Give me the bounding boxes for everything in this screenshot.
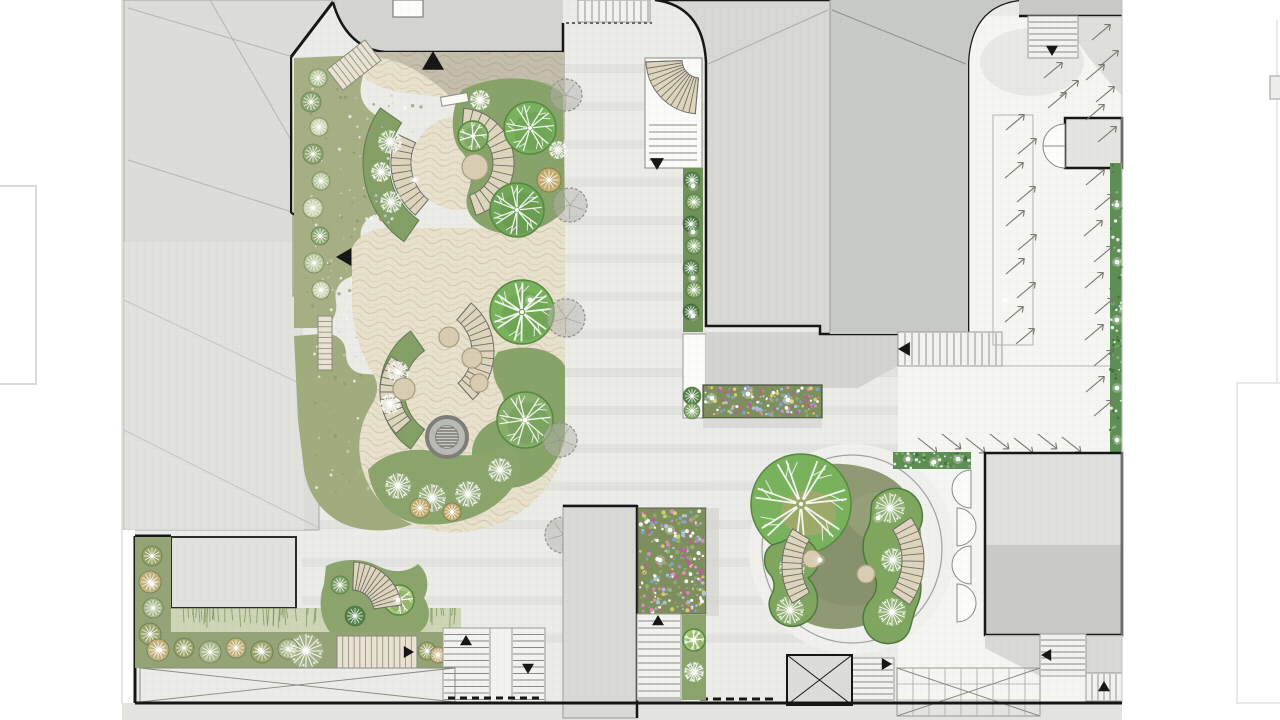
paving-texture xyxy=(122,0,1122,703)
margin-block-right xyxy=(1270,76,1280,99)
landscape-plan-document xyxy=(0,0,1280,720)
site-plan-canvas xyxy=(0,0,1280,720)
